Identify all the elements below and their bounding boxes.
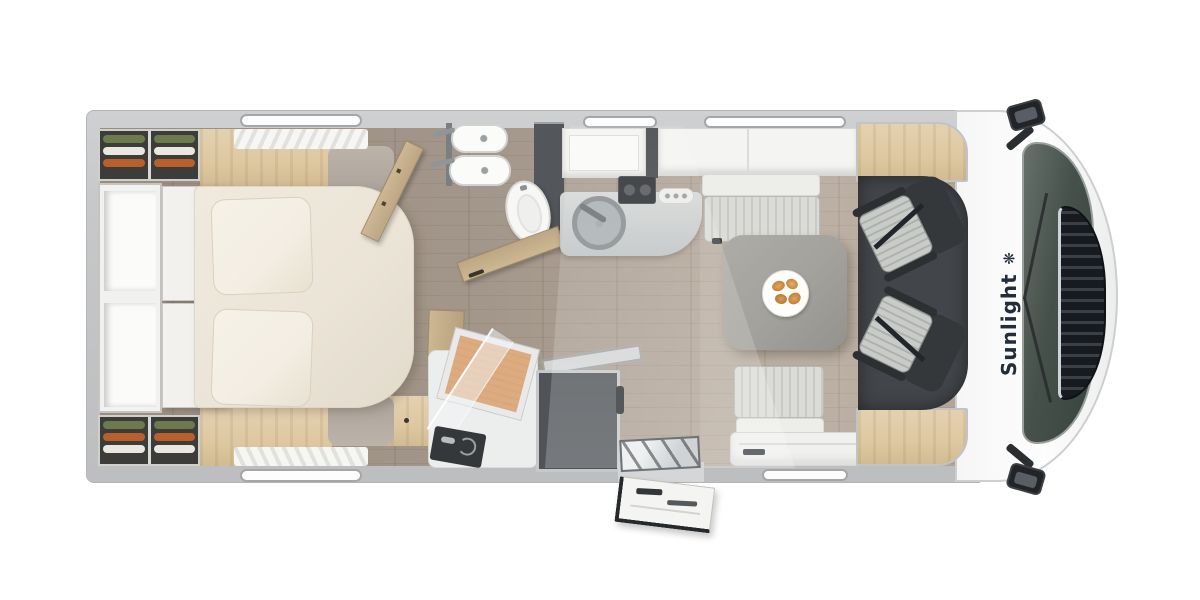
folded-clothes-white bbox=[154, 147, 196, 155]
door-handle-icon bbox=[636, 488, 662, 495]
seatbelt-buckle-icon bbox=[712, 238, 722, 244]
croissant-icon bbox=[784, 277, 799, 291]
folded-clothes-green bbox=[103, 135, 145, 143]
wardrobe-bottom-left bbox=[98, 415, 200, 466]
folded-clothes-green bbox=[103, 421, 145, 429]
side-mirror-bottom bbox=[998, 428, 1048, 494]
shower-hose-icon bbox=[457, 436, 478, 457]
toilet-flush bbox=[520, 185, 528, 192]
rear-open-shelves bbox=[98, 183, 162, 413]
folded-clothes-white bbox=[103, 147, 145, 155]
entry-step-tread bbox=[619, 436, 701, 472]
entry-sideboard bbox=[730, 432, 870, 466]
dinette-bench-top-backrest bbox=[702, 174, 820, 196]
sideboard-line bbox=[739, 443, 863, 445]
window-bedroom-top bbox=[240, 114, 362, 127]
wardrobe-top-left bbox=[98, 129, 200, 181]
window-kitchen-1 bbox=[583, 116, 657, 128]
sideboard-latch-icon bbox=[743, 449, 765, 455]
washbasin bbox=[449, 155, 511, 186]
mirror-glass bbox=[1014, 106, 1038, 124]
dinette-bench-bottom-seat bbox=[734, 366, 824, 418]
brand-label: Sunlight bbox=[997, 274, 1021, 377]
croissant-icon bbox=[786, 290, 803, 306]
fridge-handle bbox=[616, 386, 624, 414]
folded-clothes-orange bbox=[103, 159, 145, 167]
folded-clothes-orange bbox=[154, 433, 196, 441]
folded-clothes-green bbox=[154, 421, 196, 429]
croissant-icon bbox=[774, 293, 788, 305]
mirror-head bbox=[1005, 462, 1047, 497]
sun-flower-icon: ❋ bbox=[1000, 248, 1018, 267]
folded-clothes-orange bbox=[103, 433, 145, 441]
cabinet-seam bbox=[747, 129, 749, 177]
wardrobe-shelf-clothes bbox=[100, 417, 151, 464]
side-mirror-top bbox=[998, 100, 1048, 166]
brand-logo: Sunlight ❋ bbox=[995, 222, 1023, 402]
folded-clothes-orange bbox=[154, 159, 196, 167]
pillow bbox=[210, 196, 313, 295]
wardrobe-shelf-clothes bbox=[151, 131, 199, 179]
shelf-compartment bbox=[104, 191, 156, 291]
shower-head-icon bbox=[441, 436, 456, 444]
folded-clothes-white bbox=[103, 445, 145, 453]
entry-door-open bbox=[614, 476, 715, 533]
washbasin bbox=[451, 124, 508, 153]
curtain-bottom bbox=[234, 447, 368, 466]
window-dinette-bottom bbox=[762, 469, 848, 481]
kitchen-overhead-cabinet bbox=[658, 128, 858, 176]
kitchen-drawer-unit bbox=[562, 128, 646, 178]
mirror-glass bbox=[1013, 471, 1037, 489]
underbed-knob bbox=[404, 418, 409, 423]
mirror-head bbox=[1005, 98, 1047, 133]
motorhome-floorplan-image: Sunlight ❋ bbox=[0, 0, 1200, 600]
curtain-top bbox=[234, 129, 368, 149]
fridge bbox=[536, 370, 620, 472]
wardrobe-shelf-clothes bbox=[100, 131, 151, 179]
drawer-front bbox=[569, 135, 639, 171]
stove-control-panel bbox=[658, 188, 694, 204]
breakfast-plate bbox=[762, 270, 809, 317]
dashboard-wood-bottom bbox=[856, 408, 968, 466]
croissant-icon bbox=[771, 279, 787, 293]
door-handle-icon bbox=[667, 500, 697, 507]
folded-clothes-white bbox=[154, 445, 196, 453]
dashboard-wood-top bbox=[856, 122, 968, 182]
window-bedroom-bottom bbox=[240, 469, 362, 482]
window-kitchen-2 bbox=[704, 116, 846, 128]
pillow bbox=[210, 308, 313, 407]
toilet-bowl bbox=[513, 191, 546, 236]
shelf-compartment bbox=[104, 303, 156, 407]
door-hinge bbox=[381, 201, 386, 206]
kitchen-cabinet-gap bbox=[646, 128, 658, 178]
door-hinge bbox=[396, 168, 401, 173]
wardrobe-shelf-clothes bbox=[151, 417, 199, 464]
stove bbox=[618, 176, 656, 204]
folded-clothes-green bbox=[154, 135, 196, 143]
